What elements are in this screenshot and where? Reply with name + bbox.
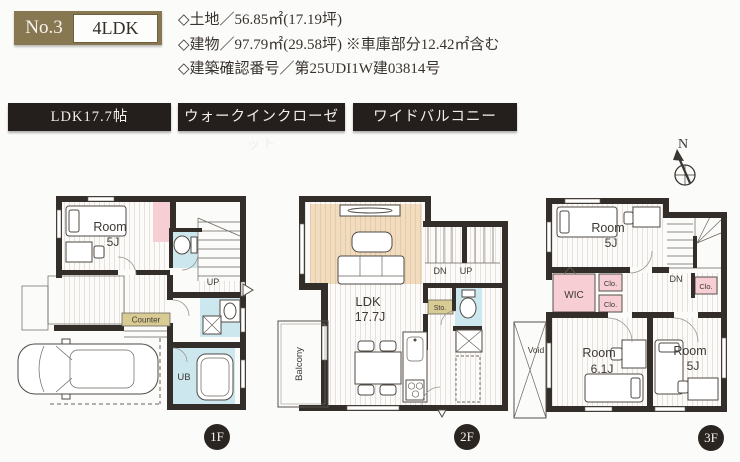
window <box>547 222 551 252</box>
washbasin-icon <box>220 300 240 322</box>
sofa-icon <box>338 256 404 284</box>
window <box>241 360 245 388</box>
sto-label: Sto. <box>434 305 447 312</box>
void-label: Void <box>528 345 545 355</box>
step-lines <box>124 331 167 337</box>
window <box>565 199 600 203</box>
counter-label: Counter <box>132 316 161 325</box>
closet-c-label: Clo. <box>699 282 712 291</box>
up-label: UP <box>207 277 220 287</box>
balcony-label: Balcony <box>294 347 305 381</box>
stairs-icon <box>667 217 721 268</box>
void-area: Void <box>514 322 546 418</box>
accent-wall <box>153 202 170 242</box>
dn-label: DN <box>434 266 447 276</box>
tv-board-icon <box>340 205 400 216</box>
toilet-icon <box>460 290 476 318</box>
room-top-label: Room <box>591 221 624 235</box>
land-area-text: ◇土地／56.85㎡(17.19坪) <box>178 8 500 33</box>
laundry-pan-icon <box>203 316 221 334</box>
balcony: Balcony <box>278 321 328 407</box>
stove-icon <box>406 380 424 400</box>
room-mid-label: Room <box>582 346 615 360</box>
listing-number-text: No.3 <box>14 11 74 45</box>
window <box>347 406 399 410</box>
stairs-icon <box>198 218 240 281</box>
balcony-door <box>322 326 327 360</box>
floor-plan-2f: Sto. Balcony <box>270 188 514 428</box>
window <box>655 407 685 411</box>
toilet-icon <box>174 236 197 254</box>
compass-needle <box>679 158 690 183</box>
window <box>88 197 114 201</box>
entry-arrow-icon <box>438 410 446 417</box>
property-details: ◇土地／56.85㎡(17.19坪) ◇建物／97.79㎡(29.58坪) ※車… <box>178 8 500 82</box>
dn-label: DN <box>670 274 683 284</box>
window <box>585 407 612 411</box>
car-icon <box>18 339 158 399</box>
floor-plan-3f: Void <box>512 188 740 428</box>
ub-label: UB <box>177 372 190 383</box>
entry-arrow-icon <box>243 284 253 296</box>
room-5j-label: Room <box>93 220 126 234</box>
feature-banner-balcony: ワイドバルコニー <box>353 103 517 131</box>
bathtub-icon <box>197 354 233 400</box>
feature-banner-wic: ウォークインクローゼット <box>178 103 345 131</box>
floor-badge-1f: 1F <box>204 424 230 450</box>
floor-badge-2f: 2F <box>454 424 480 450</box>
window <box>300 224 304 274</box>
window <box>547 343 551 388</box>
room-mid-size: 6.1J <box>591 362 614 376</box>
room-5j-size: 5J <box>107 235 120 249</box>
compass-north-label: N <box>678 137 688 152</box>
compass-icon: N <box>664 134 708 194</box>
window <box>722 338 726 378</box>
porch-tiles <box>22 286 48 330</box>
closet-a-label: Clo. <box>604 279 617 288</box>
feature-banner-ldk: LDK17.7帖 <box>8 103 171 131</box>
up-label: UP <box>460 266 473 276</box>
plan-type-badge: 4LDK <box>73 14 158 43</box>
listing-number-badge: No.3 4LDK <box>14 11 162 45</box>
table-icon <box>352 232 392 252</box>
floor-plan-1f: Counter UB <box>14 188 266 428</box>
building-permit-text: ◇建築確認番号／第25UDI1W建03814号 <box>178 57 500 82</box>
floorplan-page: No.3 4LDK ◇土地／56.85㎡(17.19坪) ◇建物／97.79㎡(… <box>0 0 740 462</box>
room-right-size: 5J <box>687 359 700 373</box>
ldk-label: LDK <box>355 294 381 309</box>
wic-label: WIC <box>564 290 583 301</box>
floor-badge-3f: 3F <box>698 425 724 451</box>
window <box>57 210 61 238</box>
ldk-size: 17.7J <box>355 310 386 324</box>
room-right-label: Room <box>673 344 706 358</box>
room-top-size: 5J <box>605 236 618 250</box>
bed-icon-mid <box>585 374 643 402</box>
window <box>241 308 245 332</box>
closet-b-label: Clo. <box>604 300 617 309</box>
building-area-text: ◇建物／97.79㎡(29.58坪) ※車庫部分12.42㎡含む <box>178 33 500 58</box>
